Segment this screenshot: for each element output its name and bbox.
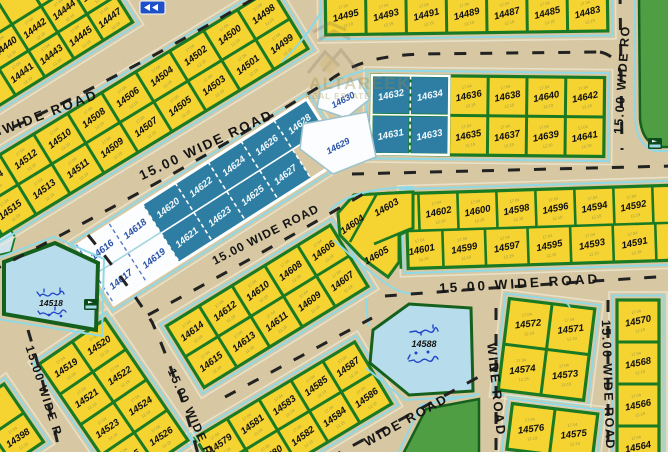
svg-text:ALTAREEK: ALTAREEK: [309, 74, 411, 93]
svg-text:REAL ESTATE: REAL ESTATE: [305, 92, 370, 101]
svg-text:14588: 14588: [411, 339, 436, 349]
svg-text:14518: 14518: [39, 298, 63, 308]
